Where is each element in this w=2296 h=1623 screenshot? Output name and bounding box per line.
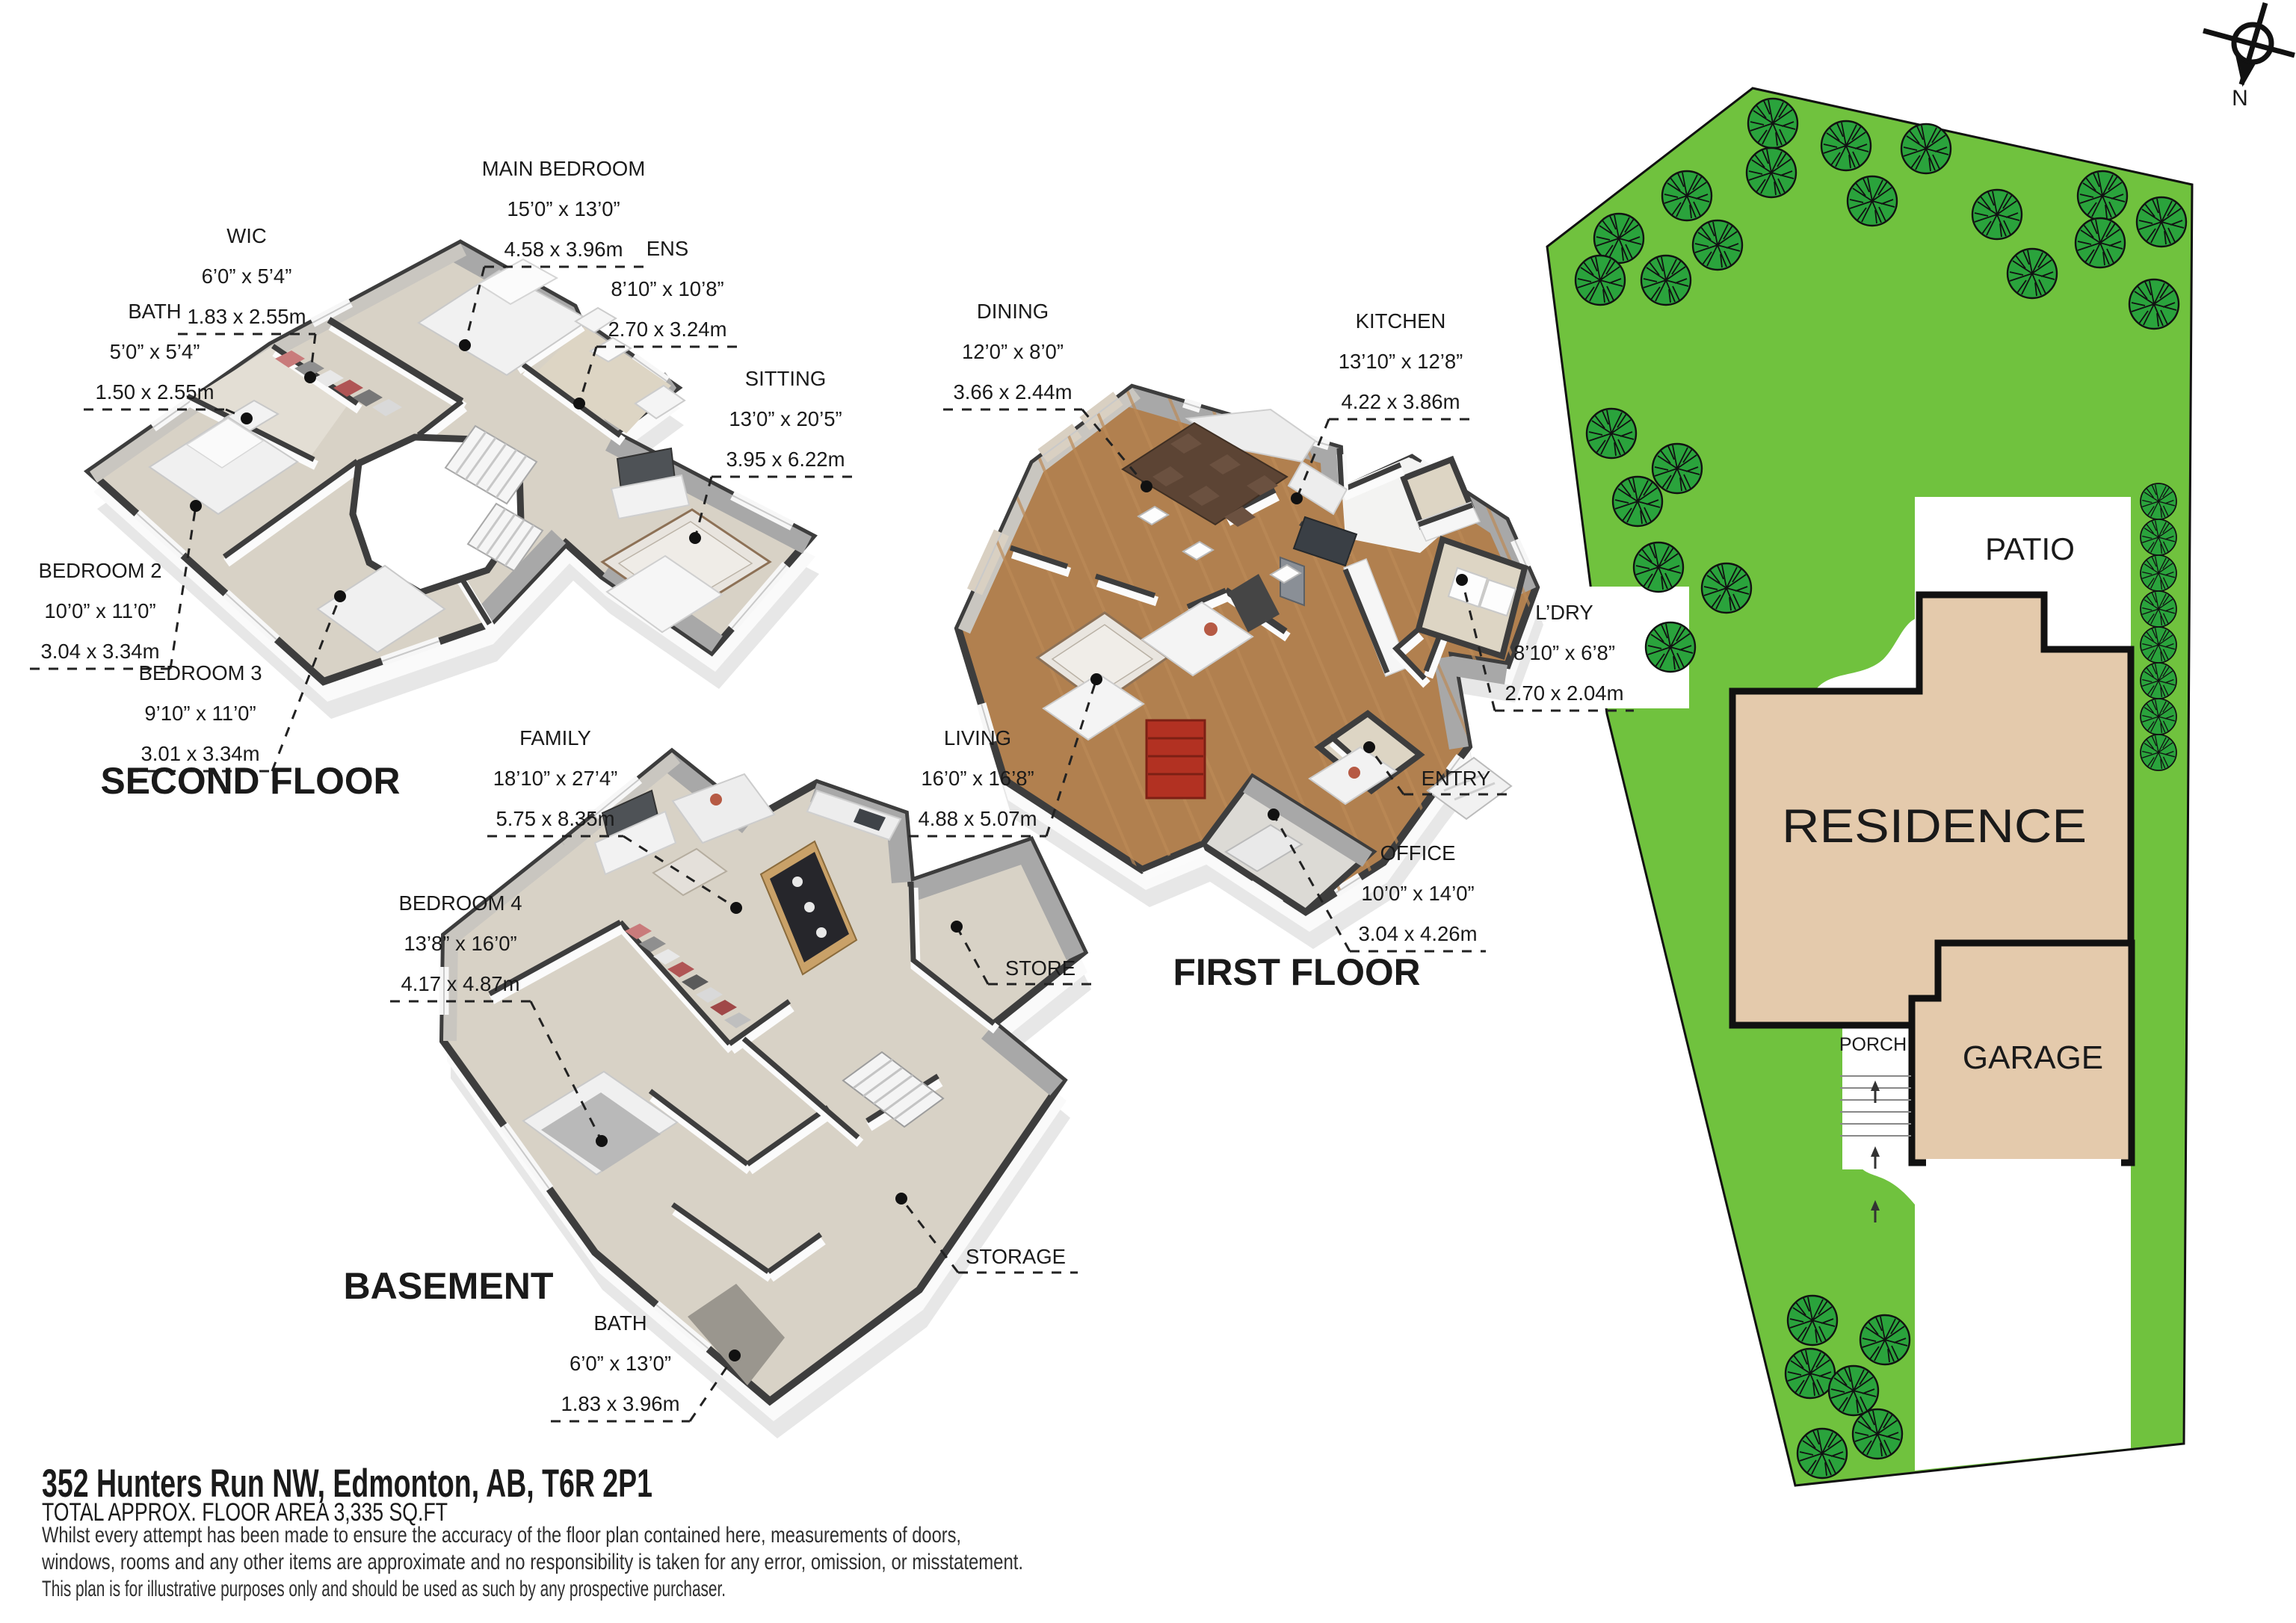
svg-text:5.75 x 8.35m: 5.75 x 8.35m [496, 807, 615, 830]
svg-text:WIC: WIC [226, 224, 266, 247]
svg-text:LIVING: LIVING [944, 726, 1011, 749]
svg-text:10’0” x 11’0”: 10’0” x 11’0” [44, 599, 155, 622]
svg-text:18’10” x 27’4”: 18’10” x 27’4” [493, 767, 618, 790]
svg-text:windows, rooms and any other i: windows, rooms and any other items are a… [41, 1550, 1023, 1574]
svg-text:STORE: STORE [1005, 956, 1076, 980]
svg-text:5’0” x 5’4”: 5’0” x 5’4” [110, 340, 200, 363]
svg-text:3.95 x 6.22m: 3.95 x 6.22m [726, 448, 845, 471]
svg-text:MAIN BEDROOM: MAIN BEDROOM [482, 157, 645, 180]
svg-text:13’10” x 12’8”: 13’10” x 12’8” [1339, 350, 1463, 373]
svg-text:4.58 x 3.96m: 4.58 x 3.96m [504, 238, 623, 261]
svg-text:2.70 x 2.04m: 2.70 x 2.04m [1505, 681, 1624, 705]
svg-text:Whilst every attempt has been: Whilst every attempt has been made to en… [42, 1523, 961, 1548]
svg-text:6’0” x 13’0”: 6’0” x 13’0” [570, 1352, 671, 1375]
svg-text:8’10” x 10’8”: 8’10” x 10’8” [611, 277, 723, 300]
svg-text:SITTING: SITTING [745, 367, 826, 390]
svg-text:ENS: ENS [646, 237, 689, 260]
svg-text:KITCHEN: KITCHEN [1356, 309, 1446, 333]
svg-text:13’0” x 20’5”: 13’0” x 20’5” [729, 407, 842, 430]
svg-text:3.66 x 2.44m: 3.66 x 2.44m [954, 380, 1073, 404]
svg-text:FAMILY: FAMILY [519, 726, 591, 749]
svg-text:BEDROOM 3: BEDROOM 3 [138, 661, 262, 684]
svg-text:PATIO: PATIO [1985, 531, 2075, 566]
svg-text:PORCH: PORCH [1839, 1034, 1907, 1055]
svg-text:10’0” x 14’0”: 10’0” x 14’0” [1361, 882, 1474, 905]
svg-text:BEDROOM 4: BEDROOM 4 [398, 891, 522, 915]
svg-text:4.88 x 5.07m: 4.88 x 5.07m [919, 807, 1037, 830]
svg-text:12’0” x 8’0”: 12’0” x 8’0” [962, 340, 1064, 363]
svg-text:6’0” x 5’4”: 6’0” x 5’4” [202, 265, 292, 288]
svg-text:RESIDENCE: RESIDENCE [1782, 800, 2087, 853]
svg-text:BASEMENT: BASEMENT [344, 1265, 554, 1307]
svg-text:4.22 x 3.86m: 4.22 x 3.86m [1342, 390, 1460, 413]
svg-text:N: N [2232, 86, 2248, 111]
svg-text:1.83 x 3.96m: 1.83 x 3.96m [561, 1392, 680, 1415]
svg-text:4.17 x 4.87m: 4.17 x 4.87m [401, 972, 520, 995]
svg-text:13’8” x 16’0”: 13’8” x 16’0” [404, 932, 516, 955]
svg-text:16’0” x 16’8”: 16’0” x 16’8” [921, 767, 1034, 790]
svg-text:This plan is for illustrative: This plan is for illustrative purposes o… [42, 1577, 726, 1601]
svg-text:GARAGE: GARAGE [1963, 1039, 2103, 1076]
svg-text:BATH: BATH [593, 1311, 646, 1335]
svg-text:ENTRY: ENTRY [1422, 767, 1491, 790]
svg-text:DINING: DINING [977, 300, 1049, 323]
svg-text:1.50 x 2.55m: 1.50 x 2.55m [96, 380, 215, 404]
svg-text:BEDROOM 2: BEDROOM 2 [38, 559, 161, 582]
svg-text:15’0” x 13’0”: 15’0” x 13’0” [507, 197, 620, 220]
svg-text:3.04 x 3.34m: 3.04 x 3.34m [41, 640, 160, 663]
svg-text:2.70 x 3.24m: 2.70 x 3.24m [608, 318, 727, 341]
svg-text:L’DRY: L’DRY [1535, 601, 1593, 624]
svg-text:3.04 x 4.26m: 3.04 x 4.26m [1359, 922, 1478, 945]
svg-text:OFFICE: OFFICE [1380, 841, 1456, 865]
svg-text:9’10” x 11’0”: 9’10” x 11’0” [144, 702, 256, 725]
svg-text:STORAGE: STORAGE [966, 1245, 1066, 1268]
svg-text:SECOND FLOOR: SECOND FLOOR [101, 760, 401, 802]
svg-text:BATH: BATH [128, 300, 181, 323]
svg-text:1.83 x 2.55m: 1.83 x 2.55m [188, 305, 306, 328]
svg-text:8’10” x 6’8”: 8’10” x 6’8” [1513, 641, 1615, 664]
svg-text:FIRST FLOOR: FIRST FLOOR [1173, 951, 1421, 993]
